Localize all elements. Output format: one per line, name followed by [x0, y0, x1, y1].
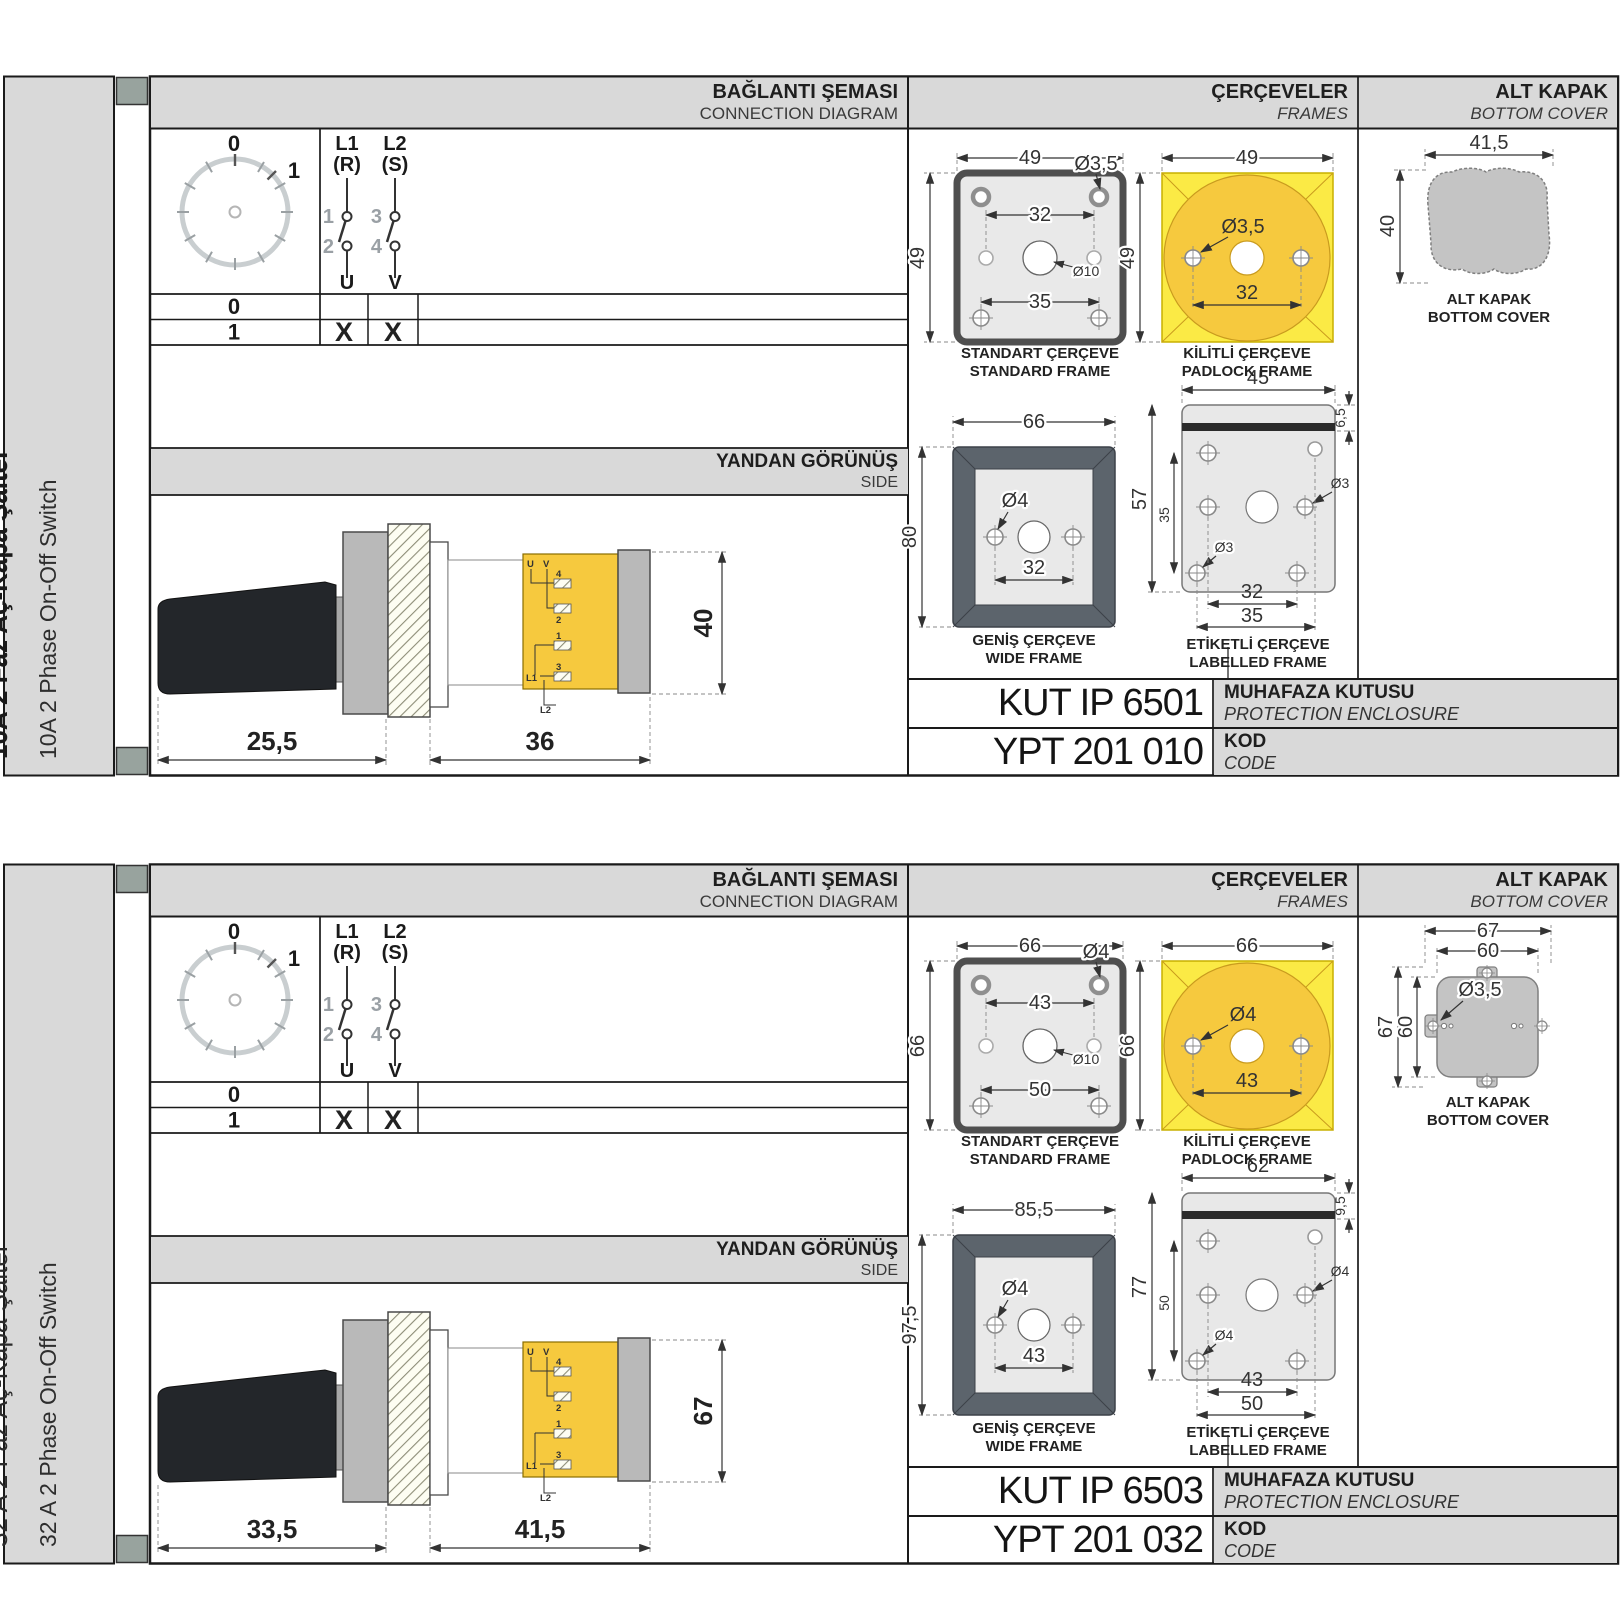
sv-label-v: V	[543, 1347, 550, 1358]
enclosure-caption-tr: MUHAFAZA KUTUSU	[1224, 682, 1614, 704]
dim-lab-b1: 32	[1241, 581, 1263, 603]
header-connection-tr: BAĞLANTI ŞEMASI	[712, 80, 898, 104]
dim-wide-h: 97,5	[899, 1306, 921, 1345]
dim-lab-b2: 50	[1241, 1393, 1263, 1415]
dim-std-inner: 43	[1029, 992, 1051, 1014]
dim-lab-b1: 43	[1241, 1369, 1263, 1391]
header-frames-en: FRAMES	[1277, 892, 1348, 912]
term-1: 1	[323, 206, 334, 228]
dial-pos-1: 1	[288, 158, 300, 183]
term-3: 3	[371, 206, 382, 228]
labelled-frame-label-tr: ETİKETLİ ÇERÇEVE	[1151, 1424, 1365, 1442]
cover-label: ALT KAPAK BOTTOM COVER	[1382, 291, 1596, 326]
standard-frame-label-en: STANDARD FRAME	[933, 363, 1147, 381]
dim-pad-hole: Ø4	[1230, 1004, 1257, 1026]
term-1: 1	[323, 994, 334, 1016]
wide-frame-label-en: WIDE FRAME	[927, 1438, 1141, 1456]
product-code: YPT 201 010	[908, 728, 1203, 776]
header-connection-en: CONNECTION DIAGRAM	[700, 892, 898, 912]
sv-label-1: 1	[556, 631, 562, 642]
dim-lab-hole2: Ø3	[1215, 539, 1234, 555]
product-panel-32a: 0 1 L1 (R) U 1 2 L2 (S) V 3 4 0	[0, 863, 1623, 1565]
out-u: U	[340, 1060, 354, 1082]
cover-label-tr: ALT KAPAK	[1382, 291, 1596, 309]
labelled-frame-label-en: LABELLED FRAME	[1151, 1442, 1365, 1460]
dim-side-d2: 36	[526, 726, 555, 756]
line-l1: L1	[335, 921, 358, 943]
dim-lab-h2: 50	[1156, 1295, 1172, 1311]
dim-side-d1: 33,5	[247, 1514, 298, 1544]
header-cover-en: BOTTOM COVER	[1470, 104, 1608, 124]
panel-drawing-32a: 0 1 L1 (R) U 1 2 L2 (S) V 3 4 0	[0, 863, 1623, 1565]
dim-cover-w: 67	[1477, 920, 1499, 942]
dim-wide-hole: Ø4	[1002, 1278, 1029, 1300]
enclosure-code: KUT IP 6503	[908, 1467, 1203, 1515]
dim-wide-inner: 43	[1023, 1345, 1045, 1367]
dim-std-bottom: 35	[1029, 291, 1051, 313]
padlock-frame-label: KİLİTLİ ÇERÇEVE PADLOCK FRAME	[1140, 1133, 1354, 1168]
line-l2: L2	[383, 133, 406, 155]
enclosure-caption-tr: MUHAFAZA KUTUSU	[1224, 1470, 1614, 1492]
wide-frame-label: GENİŞ ÇERÇEVE WIDE FRAME	[927, 632, 1141, 667]
dim-std-center: Ø10	[1073, 1051, 1100, 1067]
side-band-tr: YANDAN GÖRÜNÜŞ	[716, 451, 898, 473]
sv-label-l2: L2	[540, 705, 551, 716]
dim-std-h: 49	[907, 247, 929, 269]
wide-frame-label-tr: GENİŞ ÇERÇEVE	[927, 632, 1141, 650]
dim-side-height: 40	[688, 609, 718, 638]
dim-lab-b2: 35	[1241, 605, 1263, 627]
product-panel-10a: 0 1 L1 (R) U 1 2 L2 (S) V 3 4	[0, 75, 1623, 777]
dim-std-hole: Ø4	[1083, 941, 1110, 963]
padlock-frame-label: KİLİTLİ ÇERÇEVE PADLOCK FRAME	[1140, 345, 1354, 380]
dim-cover-w: 41,5	[1470, 132, 1509, 154]
dim-wide-w: 85,5	[1015, 1199, 1054, 1221]
sv-label-l1: L1	[526, 1461, 538, 1472]
sv-label-3: 3	[556, 662, 561, 673]
padlock-frame-label-tr: KİLİTLİ ÇERÇEVE	[1140, 345, 1354, 363]
phase-s: (S)	[382, 942, 409, 964]
sv-label-l1: L1	[526, 673, 538, 684]
enclosure-caption-en: PROTECTION ENCLOSURE	[1224, 1492, 1614, 1513]
dim-pad-h: 49	[1117, 247, 1139, 269]
dim-lab-top: 9,5	[1332, 1196, 1348, 1216]
dim-std-bottom: 50	[1029, 1079, 1051, 1101]
row1-c1: X	[335, 1105, 353, 1135]
row0-label: 0	[228, 294, 240, 319]
header-cover-tr: ALT KAPAK	[1495, 80, 1608, 104]
enclosure-code-caption: MUHAFAZA KUTUSU PROTECTION ENCLOSURE	[1224, 679, 1614, 727]
dim-std-hole: Ø3,5	[1074, 153, 1117, 175]
section-title-tr: 10A 2 Faz Aç-Kapa Şalter	[0, 449, 14, 759]
dim-cover-w2: 60	[1477, 940, 1499, 962]
product-code-caption: KOD CODE	[1224, 1516, 1614, 1564]
dim-lab-hole1: Ø4	[1331, 1263, 1350, 1279]
cover-label-tr: ALT KAPAK	[1381, 1094, 1595, 1112]
enclosure-code: KUT IP 6501	[908, 679, 1203, 727]
dim-pad-inner: 32	[1236, 282, 1258, 304]
dim-lab-h: 57	[1129, 488, 1151, 510]
dim-wide-w: 66	[1023, 411, 1045, 433]
row1-c1: X	[335, 317, 353, 347]
standard-frame-label-en: STANDARD FRAME	[933, 1151, 1147, 1169]
sv-label-2: 2	[556, 1403, 561, 1414]
code-caption-tr: KOD	[1224, 1519, 1614, 1541]
sv-label-v: V	[543, 559, 550, 570]
labelled-frame-label: ETİKETLİ ÇERÇEVE LABELLED FRAME	[1151, 636, 1365, 671]
term-4: 4	[371, 1024, 383, 1046]
standard-frame-label-tr: STANDART ÇERÇEVE	[933, 1133, 1147, 1151]
dim-cover-h2: 60	[1395, 1016, 1417, 1038]
sv-label-4: 4	[556, 569, 562, 580]
dial-pos-0: 0	[228, 131, 240, 156]
dim-std-w: 66	[1019, 935, 1041, 957]
code-caption-en: CODE	[1224, 753, 1614, 774]
dim-side-d2: 41,5	[515, 1514, 566, 1544]
phase-r: (R)	[333, 942, 361, 964]
term-4: 4	[371, 236, 383, 258]
wide-frame-label-tr: GENİŞ ÇERÇEVE	[927, 1420, 1141, 1438]
padlock-frame-label-en: PADLOCK FRAME	[1140, 363, 1354, 381]
row1-label: 1	[228, 320, 240, 345]
out-v: V	[388, 1060, 402, 1082]
term-2: 2	[323, 236, 334, 258]
header-cover: ALT KAPAK BOTTOM COVER	[1358, 865, 1618, 915]
dim-pad-w: 66	[1236, 935, 1258, 957]
sv-label-3: 3	[556, 1450, 561, 1461]
product-code: YPT 201 032	[908, 1516, 1203, 1564]
dial-pos-1: 1	[288, 946, 300, 971]
dim-lab-h: 77	[1129, 1276, 1151, 1298]
standard-frame-label-tr: STANDART ÇERÇEVE	[933, 345, 1147, 363]
dim-cover-h: 40	[1377, 215, 1399, 237]
sv-label-2: 2	[556, 615, 561, 626]
labelled-frame-label: ETİKETLİ ÇERÇEVE LABELLED FRAME	[1151, 1424, 1365, 1459]
sv-label-4: 4	[556, 1357, 562, 1368]
out-u: U	[340, 272, 354, 294]
dim-lab-h2: 35	[1156, 507, 1172, 523]
dim-cover-h: 67	[1375, 1016, 1397, 1038]
header-connection: BAĞLANTI ŞEMASI CONNECTION DIAGRAM	[150, 77, 908, 127]
wide-frame-label-en: WIDE FRAME	[927, 650, 1141, 668]
code-caption-en: CODE	[1224, 1541, 1614, 1562]
padlock-frame-label-en: PADLOCK FRAME	[1140, 1151, 1354, 1169]
header-connection: BAĞLANTI ŞEMASI CONNECTION DIAGRAM	[150, 865, 908, 915]
header-frames-en: FRAMES	[1277, 104, 1348, 124]
out-v: V	[388, 272, 402, 294]
term-2: 2	[323, 1024, 334, 1046]
header-frames: ÇERÇEVELER FRAMES	[908, 77, 1358, 127]
phase-r: (R)	[333, 154, 361, 176]
dim-pad-h: 66	[1117, 1035, 1139, 1057]
sv-label-1: 1	[556, 1419, 562, 1430]
sv-label-u: U	[527, 559, 534, 570]
header-frames-tr: ÇERÇEVELER	[1211, 80, 1348, 104]
section-title-en: 10A 2 Phase On-Off Switch	[35, 479, 62, 759]
section-title-en: 32 A 2 Phase On-Off Switch	[35, 1262, 62, 1547]
product-code-caption: KOD CODE	[1224, 728, 1614, 776]
dim-wide-inner: 32	[1023, 557, 1045, 579]
dim-pad-hole: Ø3,5	[1221, 216, 1264, 238]
side-band: YANDAN GÖRÜNÜŞ SIDE	[150, 448, 908, 495]
section-title-tr: 32 A 2 Faz Aç-Kapa Şalter	[0, 1243, 14, 1547]
dim-pad-inner: 43	[1236, 1070, 1258, 1092]
enclosure-caption-en: PROTECTION ENCLOSURE	[1224, 704, 1614, 725]
header-cover: ALT KAPAK BOTTOM COVER	[1358, 77, 1618, 127]
standard-frame-label: STANDART ÇERÇEVE STANDARD FRAME	[933, 1133, 1147, 1168]
cover-label: ALT KAPAK BOTTOM COVER	[1381, 1094, 1595, 1129]
row1-label: 1	[228, 1108, 240, 1133]
phase-s: (S)	[382, 154, 409, 176]
dim-lab-hole2: Ø4	[1215, 1327, 1234, 1343]
cover-label-en: BOTTOM COVER	[1382, 309, 1596, 327]
dim-wide-hole: Ø4	[1002, 490, 1029, 512]
sv-label-l2: L2	[540, 1493, 551, 1504]
header-frames-tr: ÇERÇEVELER	[1211, 868, 1348, 892]
row1-c2: X	[384, 1105, 402, 1135]
dim-side-d1: 25,5	[247, 726, 298, 756]
labelled-frame-label-en: LABELLED FRAME	[1151, 654, 1365, 672]
dim-lab-top: 6,5	[1332, 408, 1348, 428]
side-band-en: SIDE	[861, 1261, 898, 1280]
labelled-frame-label-tr: ETİKETLİ ÇERÇEVE	[1151, 636, 1365, 654]
header-connection-tr: BAĞLANTI ŞEMASI	[712, 868, 898, 892]
padlock-frame-label-tr: KİLİTLİ ÇERÇEVE	[1140, 1133, 1354, 1151]
dial-pos-0: 0	[228, 919, 240, 944]
side-band-tr: YANDAN GÖRÜNÜŞ	[716, 1239, 898, 1261]
sv-label-u: U	[527, 1347, 534, 1358]
dim-std-h: 66	[907, 1035, 929, 1057]
panel-drawing-10a: 0 1 L1 (R) U 1 2 L2 (S) V 3 4	[0, 75, 1623, 777]
code-caption-tr: KOD	[1224, 731, 1614, 753]
dim-std-center: Ø10	[1073, 263, 1100, 279]
header-cover-en: BOTTOM COVER	[1470, 892, 1608, 912]
dim-pad-w: 49	[1236, 147, 1258, 169]
enclosure-code-caption: MUHAFAZA KUTUSU PROTECTION ENCLOSURE	[1224, 1467, 1614, 1515]
line-l1: L1	[335, 133, 358, 155]
term-3: 3	[371, 994, 382, 1016]
header-frames: ÇERÇEVELER FRAMES	[908, 865, 1358, 915]
dim-std-w: 49	[1019, 147, 1041, 169]
dim-side-height: 67	[688, 1397, 718, 1426]
dim-lab-hole1: Ø3	[1331, 475, 1350, 491]
side-band-en: SIDE	[861, 473, 898, 492]
line-l2: L2	[383, 921, 406, 943]
row0-label: 0	[228, 1082, 240, 1107]
dim-std-inner: 32	[1029, 204, 1051, 226]
header-cover-tr: ALT KAPAK	[1495, 868, 1608, 892]
dim-cover-hole: Ø3,5	[1458, 979, 1501, 1001]
dim-wide-h: 80	[899, 526, 921, 548]
header-connection-en: CONNECTION DIAGRAM	[700, 104, 898, 124]
wide-frame-label: GENİŞ ÇERÇEVE WIDE FRAME	[927, 1420, 1141, 1455]
side-band: YANDAN GÖRÜNÜŞ SIDE	[150, 1236, 908, 1283]
row1-c2: X	[384, 317, 402, 347]
cover-label-en: BOTTOM COVER	[1381, 1112, 1595, 1130]
standard-frame-label: STANDART ÇERÇEVE STANDARD FRAME	[933, 345, 1147, 380]
